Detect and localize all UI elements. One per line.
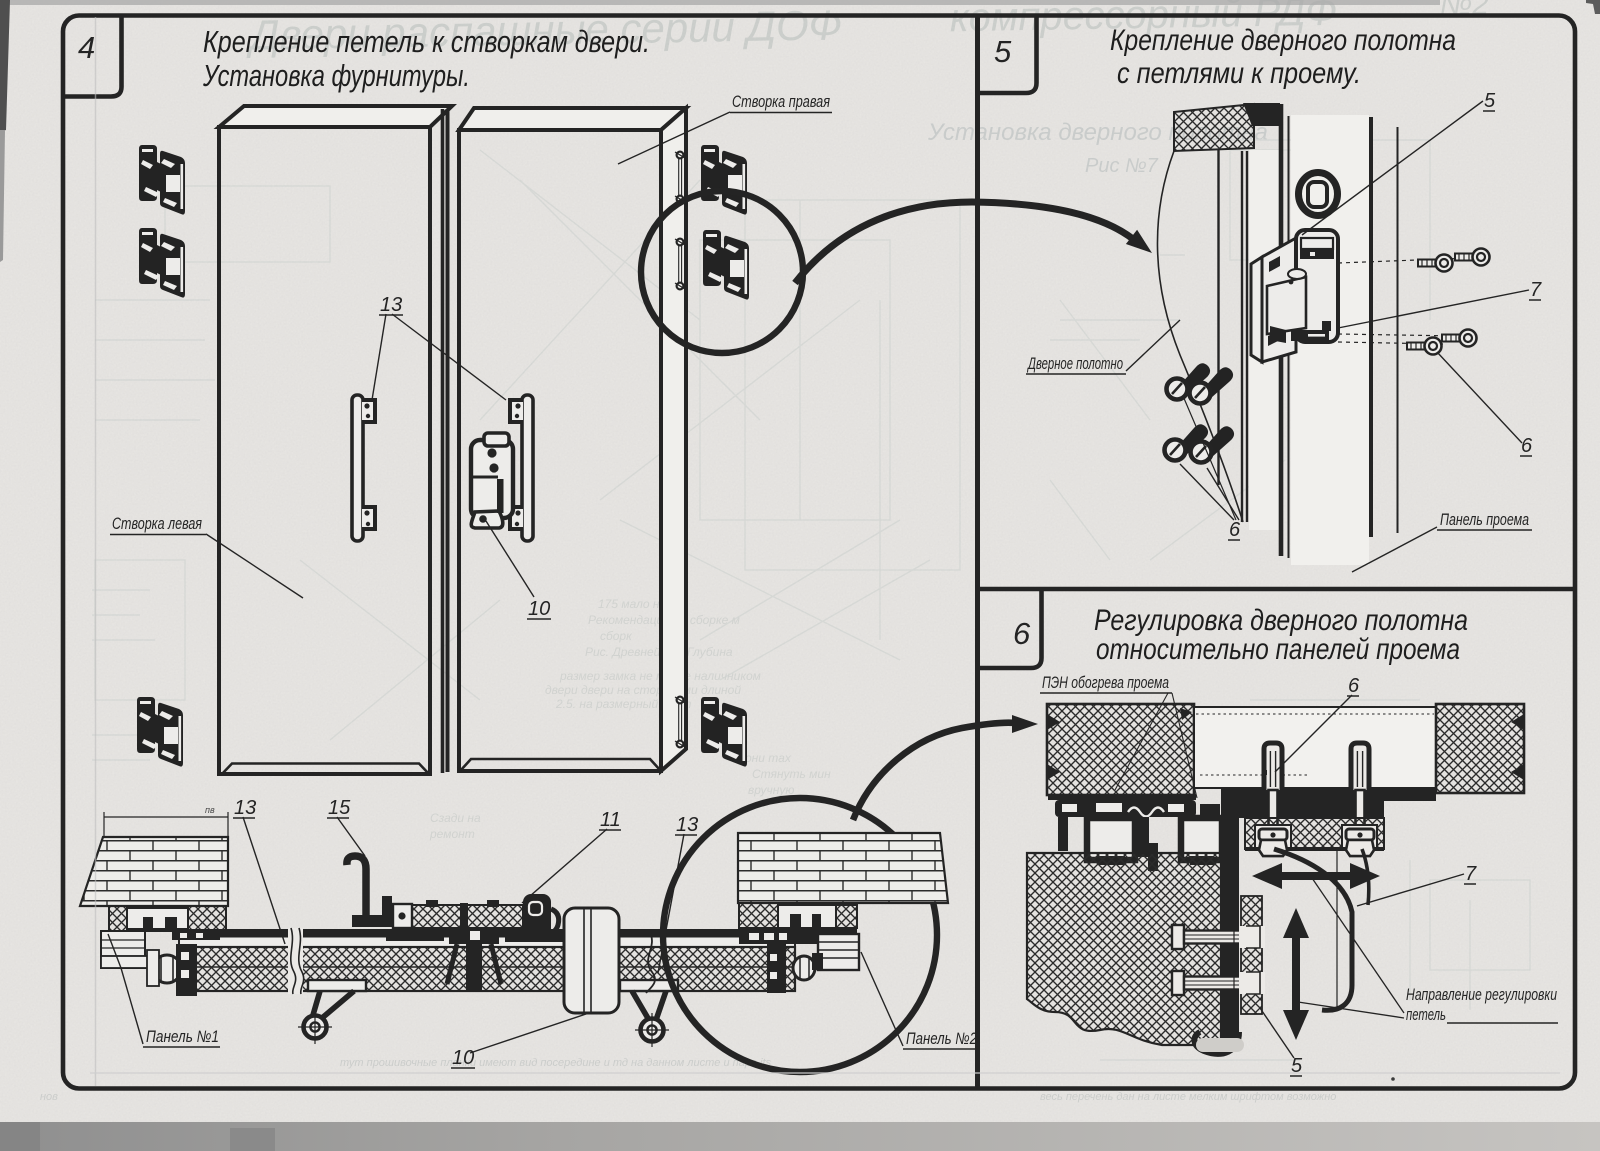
svg-text:Направление регулировки: Направление регулировки xyxy=(1406,986,1557,1004)
svg-text:Панель №1: Панель №1 xyxy=(146,1028,219,1046)
svg-text:4: 4 xyxy=(78,30,95,65)
svg-text:пв: пв xyxy=(205,805,215,815)
svg-text:11: 11 xyxy=(600,809,621,831)
svg-text:ПЭН обогрева проема: ПЭН обогрева проема xyxy=(1042,674,1169,692)
svg-text:относительно панелей проема: относительно панелей проема xyxy=(1096,633,1460,666)
svg-text:петель: петель xyxy=(1406,1006,1446,1024)
svg-text:Установка фурнитуры.: Установка фурнитуры. xyxy=(202,58,470,93)
svg-text:Панель №2: Панель №2 xyxy=(906,1030,977,1048)
svg-text:Крепление петель к створкам дв: Крепление петель к створкам двери. xyxy=(203,24,650,59)
svg-text:13: 13 xyxy=(234,797,256,819)
svg-text:10: 10 xyxy=(528,598,550,620)
svg-text:6: 6 xyxy=(1521,435,1533,457)
svg-text:7: 7 xyxy=(1465,863,1477,885)
svg-text:7: 7 xyxy=(1530,279,1542,301)
svg-text:5: 5 xyxy=(1484,90,1496,112)
svg-text:Крепление дверного полотна: Крепление дверного полотна xyxy=(1110,24,1456,57)
svg-text:5: 5 xyxy=(994,34,1012,69)
svg-text:Панель проема: Панель проема xyxy=(1440,511,1529,529)
svg-text:Створка левая: Створка левая xyxy=(112,515,202,533)
svg-text:с петлями к проему.: с петлями к проему. xyxy=(1117,57,1361,90)
svg-text:Створка правая: Створка правая xyxy=(732,93,830,111)
svg-text:6: 6 xyxy=(1229,519,1241,541)
svg-text:6: 6 xyxy=(1013,616,1031,651)
svg-text:Дверное полотно: Дверное полотно xyxy=(1027,355,1123,373)
svg-text:10: 10 xyxy=(452,1047,474,1069)
svg-text:13: 13 xyxy=(380,294,402,316)
svg-text:15: 15 xyxy=(328,797,351,819)
svg-text:13: 13 xyxy=(676,814,698,836)
svg-text:6: 6 xyxy=(1348,675,1360,697)
